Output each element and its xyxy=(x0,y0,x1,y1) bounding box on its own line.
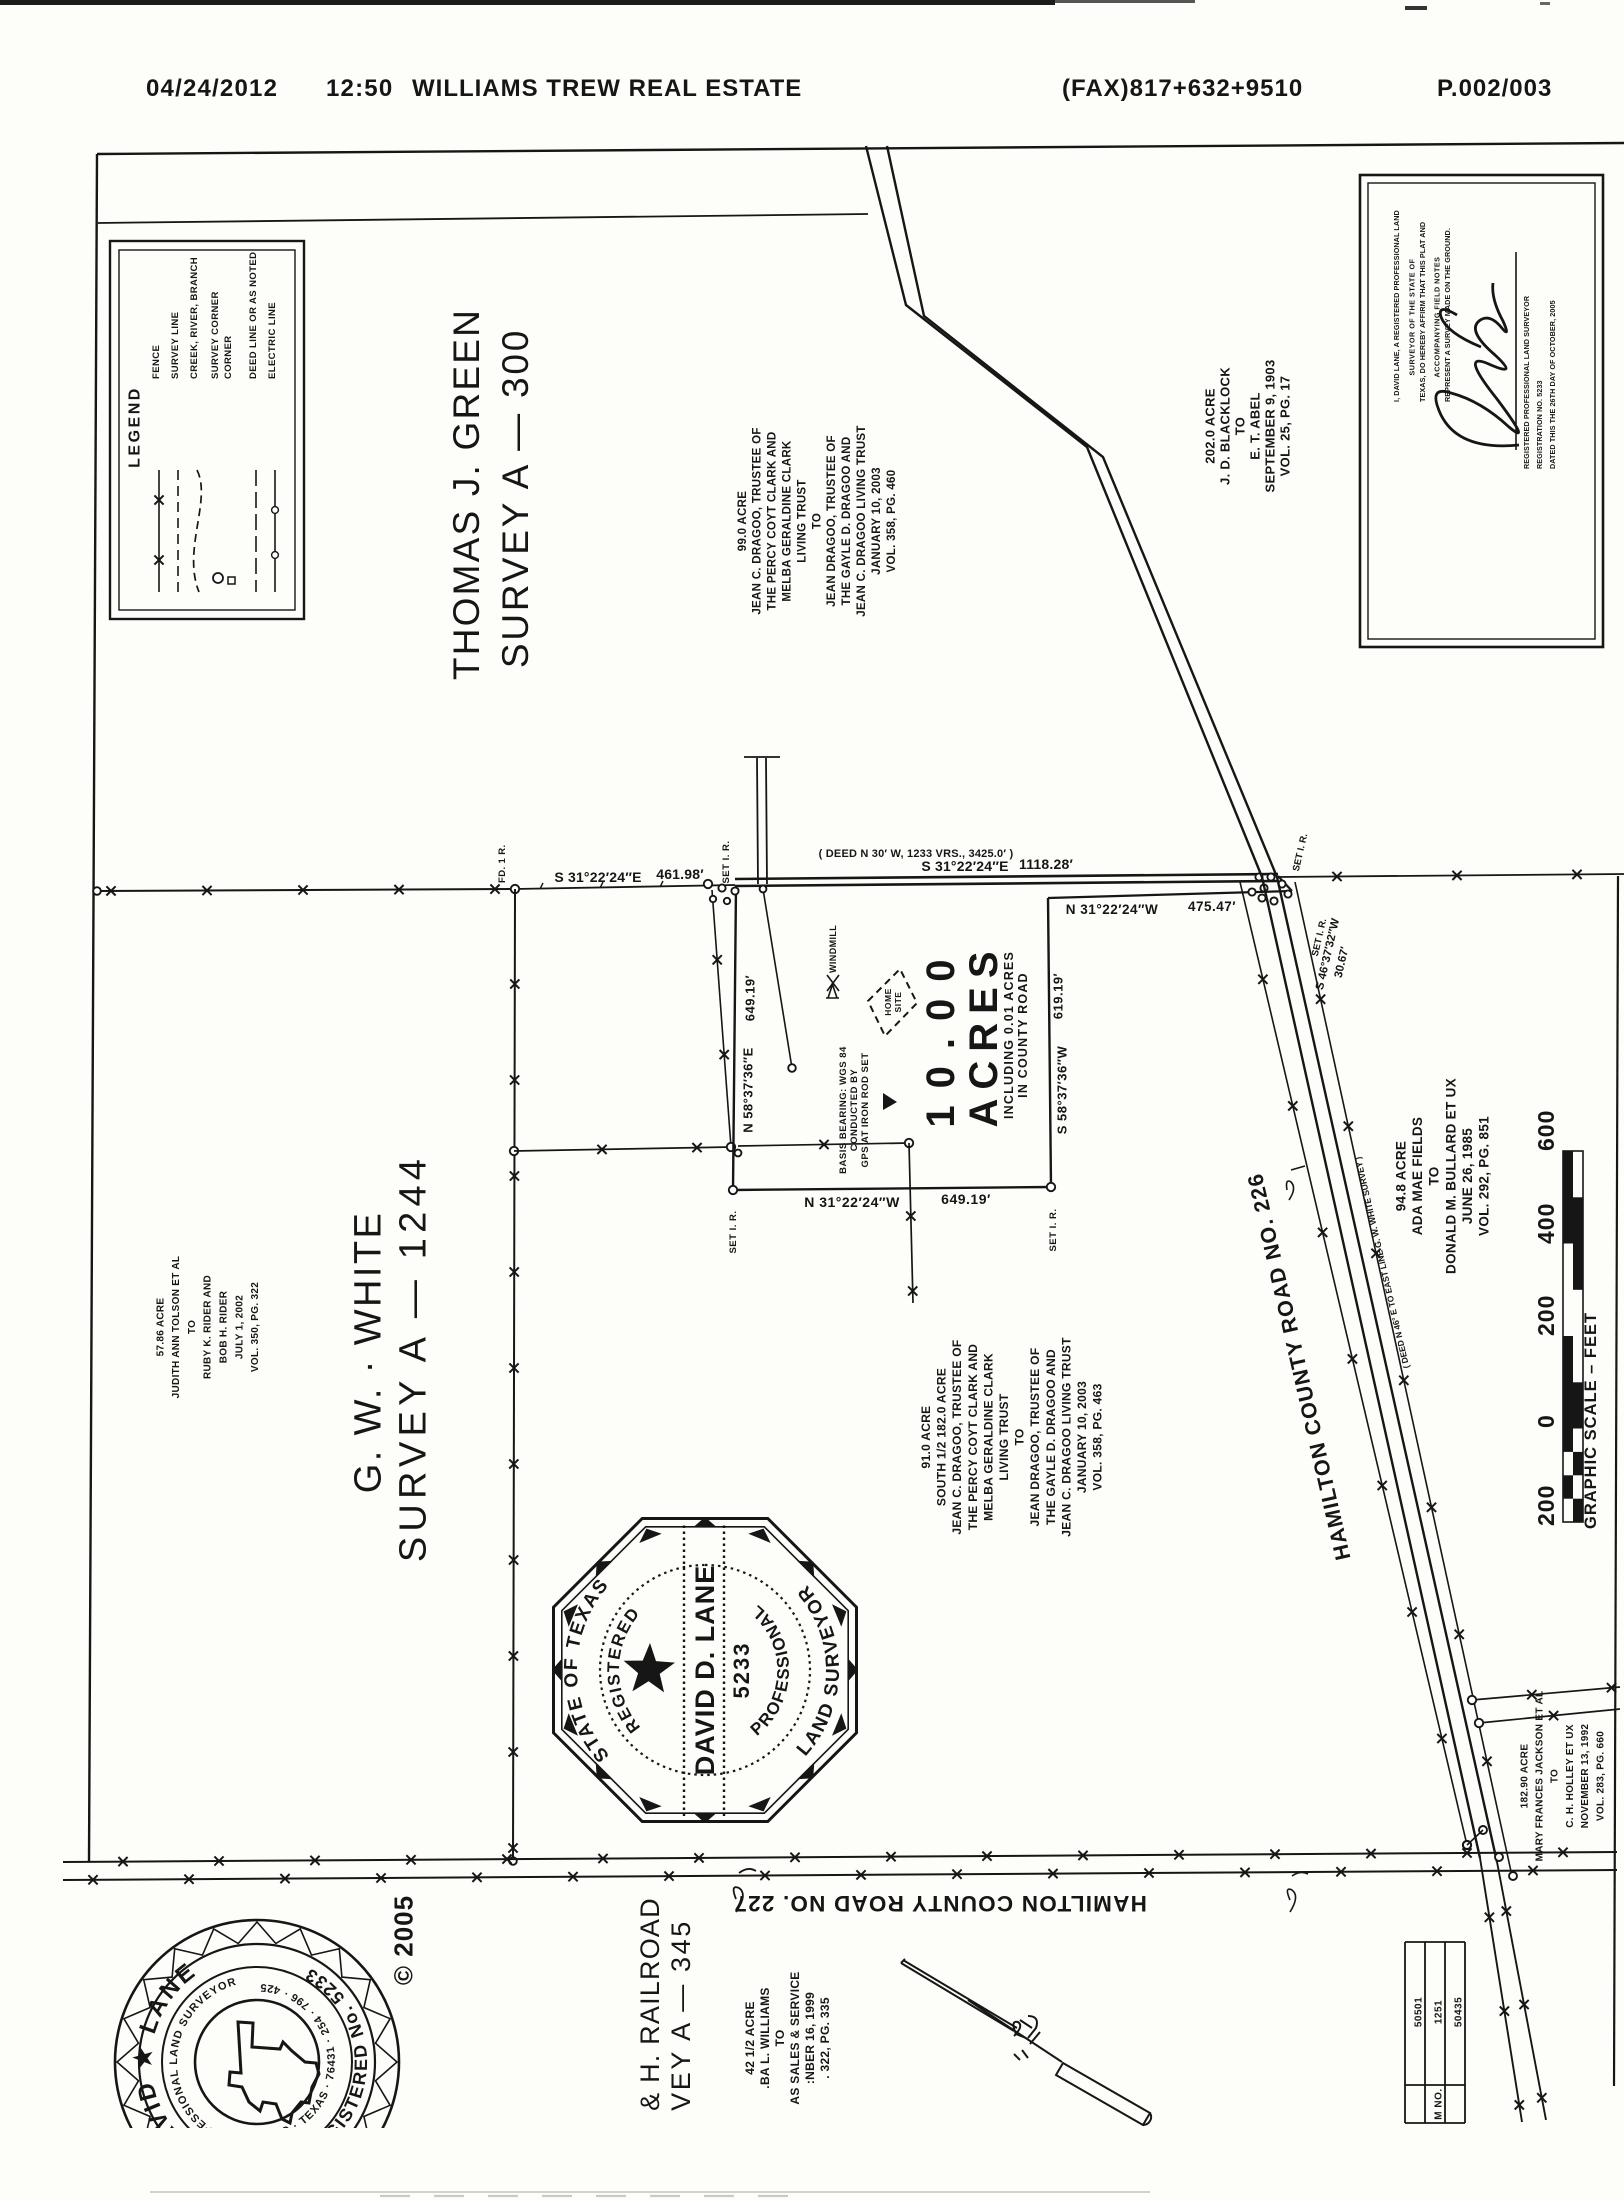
svg-text:SURVEY CORNER: SURVEY CORNER xyxy=(210,291,221,379)
svg-text:N 31°22′24″W: N 31°22′24″W xyxy=(1066,902,1158,917)
svg-text:S 58°37′36″W: S 58°37′36″W xyxy=(1054,1046,1069,1135)
svg-text:SITE: SITE xyxy=(893,992,903,1013)
svg-text:VOL. 350, PG. 322: VOL. 350, PG. 322 xyxy=(250,1282,261,1372)
svg-text:REPRESENT A SURVEY MADE ON THE: REPRESENT A SURVEY MADE ON THE GROUND. xyxy=(1443,228,1452,402)
svg-text:475.47′: 475.47′ xyxy=(1188,899,1236,914)
svg-text:HOME: HOME xyxy=(883,988,893,1016)
svg-text:99.0 ACRE: 99.0 ACRE xyxy=(737,491,749,551)
svg-text:THE PERCY COYT CLARK AND: THE PERCY COYT CLARK AND xyxy=(767,431,779,610)
svg-text:MELBA GERALDINE CLARK: MELBA GERALDINE CLARK xyxy=(981,1353,995,1521)
svg-text:N 31°22′24″W: N 31°22′24″W xyxy=(804,1194,900,1210)
svg-text:THE PERCY COYT CLARK AND: THE PERCY COYT CLARK AND xyxy=(966,1344,980,1531)
svg-text:BOB H. RIDER: BOB H. RIDER xyxy=(219,1290,230,1363)
svg-text:TO: TO xyxy=(187,1320,198,1334)
svg-text:50435: 50435 xyxy=(1453,1997,1464,2027)
svg-text:HAMILTON COUNTY ROAD NO. 227: HAMILTON COUNTY ROAD NO. 227 xyxy=(733,1891,1147,1916)
svg-text:619.19′: 619.19′ xyxy=(1050,973,1065,1019)
svg-text:VOL. 283, PG. 660: VOL. 283, PG. 660 xyxy=(1595,1731,1606,1821)
svg-text:1251: 1251 xyxy=(1433,2000,1444,2024)
svg-text:LIVING TRUST: LIVING TRUST xyxy=(796,479,808,562)
svg-text:& H. RAILROAD: & H. RAILROAD xyxy=(635,1897,665,2111)
svg-text:649.19′: 649.19′ xyxy=(742,975,757,1021)
svg-text:REGISTERED PROFESSIONAL LAND S: REGISTERED PROFESSIONAL LAND SURVEYOR xyxy=(1522,295,1531,469)
svg-text:THOMAS J. GREEN: THOMAS J. GREEN xyxy=(446,308,487,680)
svg-text:04/24/2012: 04/24/2012 xyxy=(146,75,278,102)
svg-text:182.90 ACRE: 182.90 ACRE xyxy=(1519,1744,1530,1809)
svg-text:SET I. R.: SET I. R. xyxy=(1291,832,1310,872)
svg-text:VEY A — 345: VEY A — 345 xyxy=(666,1919,696,2111)
svg-text:VOL. 292, PG. 851: VOL. 292, PG. 851 xyxy=(1477,1116,1492,1236)
svg-text:G. W. · WHITE: G. W. · WHITE xyxy=(348,1211,390,1493)
svg-text:FD. 1 R.: FD. 1 R. xyxy=(497,844,508,883)
svg-text:BASIS BEARING: WGS 84: BASIS BEARING: WGS 84 xyxy=(838,1046,849,1174)
svg-text:SET I. R.: SET I. R. xyxy=(721,840,732,883)
svg-text::NBER 16, 1999: :NBER 16, 1999 xyxy=(803,1992,817,2084)
svg-text:VOL. 25, PG. 17: VOL. 25, PG. 17 xyxy=(1277,376,1292,477)
svg-text:91.0 ACRE: 91.0 ACRE xyxy=(919,1406,933,1469)
svg-text:J. D. BLACKLOCK: J. D. BLACKLOCK xyxy=(1217,367,1232,485)
svg-text:.BA L. WILLIAMS: .BA L. WILLIAMS xyxy=(758,1987,772,2088)
svg-text:CORNER: CORNER xyxy=(223,335,234,379)
svg-text:CREEK, RIVER, BRANCH: CREEK, RIVER, BRANCH xyxy=(189,257,200,379)
svg-text:JUDITH ANN TOLSON ET AL: JUDITH ANN TOLSON ET AL xyxy=(171,1256,182,1399)
svg-text:S 31°22′24″E: S 31°22′24″E xyxy=(554,869,641,885)
svg-text:N 58°37′36″E: N 58°37′36″E xyxy=(740,1047,755,1133)
svg-text:JEAN DRAGOO, TRUSTEE OF: JEAN DRAGOO, TRUSTEE OF xyxy=(1028,1348,1042,1527)
svg-text:THE GAYLE D. DRAGOO AND: THE GAYLE D. DRAGOO AND xyxy=(841,437,853,606)
svg-text:FENCE: FENCE xyxy=(151,345,162,379)
svg-text:IN COUNTY ROAD: IN COUNTY ROAD xyxy=(1016,972,1030,1098)
svg-text:JEAN C. DRAGOO LIVING TRUST: JEAN C. DRAGOO LIVING TRUST xyxy=(856,425,868,616)
svg-text:200: 200 xyxy=(1533,1295,1559,1336)
svg-text:DATED THIS THE 26TH DAY OF OCT: DATED THIS THE 26TH DAY OF OCTOBER, 2005 xyxy=(1548,300,1557,469)
svg-text:NOVEMBER 13, 1992: NOVEMBER 13, 1992 xyxy=(1580,1724,1591,1829)
svg-text:TO: TO xyxy=(1550,1769,1561,1783)
svg-text:LEGEND: LEGEND xyxy=(126,386,143,468)
svg-text:C. H. HOLLEY ET UX: C. H. HOLLEY ET UX xyxy=(1565,1724,1576,1828)
svg-text:RUBY K. RIDER AND: RUBY K. RIDER AND xyxy=(203,1275,214,1379)
svg-text:VOL. 358, PG. 463: VOL. 358, PG. 463 xyxy=(1091,1383,1105,1490)
svg-text:(FAX)817+632+9510: (FAX)817+632+9510 xyxy=(1062,75,1303,102)
svg-text:SEPTEMBER 9, 1903: SEPTEMBER 9, 1903 xyxy=(1262,360,1277,493)
svg-text:0: 0 xyxy=(1533,1414,1559,1428)
svg-text:ELECTRIC LINE: ELECTRIC LINE xyxy=(267,302,278,379)
svg-text:10.00: 10.00 xyxy=(919,942,963,1127)
svg-text:E. T. ABEL: E. T. ABEL xyxy=(1247,392,1262,460)
svg-text:12:50: 12:50 xyxy=(326,75,393,102)
svg-text:S 31°22′24″E: S 31°22′24″E xyxy=(921,858,1008,874)
svg-text:200: 200 xyxy=(1533,1485,1559,1526)
svg-text:I, DAVID LANE, A REGISTERED PR: I, DAVID LANE, A REGISTERED PROFESSIONAL… xyxy=(1392,210,1401,402)
svg-text:VOL. 358, PG. 460: VOL. 358, PG. 460 xyxy=(886,470,898,573)
svg-text:GPS AT IRON ROD SET: GPS AT IRON ROD SET xyxy=(860,1052,871,1167)
svg-text:400: 400 xyxy=(1533,1203,1559,1244)
svg-text:TEXAS, DO HEREBY AFFIRM THAT T: TEXAS, DO HEREBY AFFIRM THAT THIS PLAT A… xyxy=(1418,222,1427,402)
svg-text:5233: 5233 xyxy=(729,1642,754,1699)
svg-text:PROFESSIONAL LAND SURVEYOR: PROFESSIONAL LAND SURVEYOR xyxy=(168,1976,238,2148)
svg-text:SOUTH 1/2 182.0 ACRE: SOUTH 1/2 182.0 ACRE xyxy=(935,1368,949,1506)
svg-text:DEED LINE OR AS NOTED: DEED LINE OR AS NOTED xyxy=(248,252,259,379)
svg-text:CONDUCTED BY: CONDUCTED BY xyxy=(849,1069,860,1152)
svg-text:SURVEY LINE: SURVEY LINE xyxy=(170,312,181,379)
svg-text:SURVEY A — 1244: SURVEY A — 1244 xyxy=(393,1154,435,1562)
svg-text:JEAN DRAGOO, TRUSTEE OF: JEAN DRAGOO, TRUSTEE OF xyxy=(826,435,838,607)
svg-text:JEAN C. DRAGOO, TRUSTEE OF: JEAN C. DRAGOO, TRUSTEE OF xyxy=(752,427,764,614)
svg-text:600: 600 xyxy=(1533,1110,1559,1151)
svg-text:TO: TO xyxy=(811,513,823,529)
svg-text:REGISTRATION NO. 5233: REGISTRATION NO. 5233 xyxy=(1535,380,1544,469)
svg-text:1118.28′: 1118.28′ xyxy=(1019,856,1073,872)
svg-text:JULY 1, 2002: JULY 1, 2002 xyxy=(234,1295,245,1359)
svg-text:LIVING TRUST: LIVING TRUST xyxy=(997,1393,1011,1480)
svg-text:JUNE 26, 1985: JUNE 26, 1985 xyxy=(1460,1128,1475,1224)
svg-text:TO: TO xyxy=(1013,1428,1027,1445)
svg-text:202.0 ACRE: 202.0 ACRE xyxy=(1202,388,1217,464)
svg-text:JANUARY 10, 2003: JANUARY 10, 2003 xyxy=(871,467,883,575)
svg-text:JEAN C. DRAGOO LIVING TRUST: JEAN C. DRAGOO LIVING TRUST xyxy=(1059,1337,1073,1537)
svg-text:SET I. R.: SET I. R. xyxy=(728,1210,739,1253)
svg-text:57.86 ACRE: 57.86 ACRE xyxy=(155,1298,166,1357)
svg-text:GRAPHIC SCALE – FEET: GRAPHIC SCALE – FEET xyxy=(1582,1312,1600,1529)
svg-text:© 2005: © 2005 xyxy=(389,1895,419,1985)
svg-text:JANUARY 10, 2003: JANUARY 10, 2003 xyxy=(1075,1381,1089,1493)
svg-text:WILLIAMS TREW REAL ESTATE: WILLIAMS TREW REAL ESTATE xyxy=(412,75,802,102)
svg-text:AS SALES & SERVICE: AS SALES & SERVICE xyxy=(788,1971,802,2104)
svg-text:ADA MAE FIELDS: ADA MAE FIELDS xyxy=(1410,1117,1425,1235)
svg-text:ACRES: ACRES xyxy=(962,942,1006,1127)
svg-text:30.67′: 30.67′ xyxy=(1333,945,1352,979)
svg-text:94.8 ACRE: 94.8 ACRE xyxy=(1394,1141,1409,1211)
svg-text:DONALD M. BULLARD ET UX: DONALD M. BULLARD ET UX xyxy=(1443,1078,1458,1274)
svg-text:TO: TO xyxy=(773,2029,787,2046)
svg-text:TO: TO xyxy=(1427,1166,1442,1185)
svg-text:JEAN C. DRAGOO, TRUSTEE OF: JEAN C. DRAGOO, TRUSTEE OF xyxy=(950,1339,964,1534)
svg-text:P.002/003: P.002/003 xyxy=(1437,75,1552,102)
svg-text:MELBA GERALDINE CLARK: MELBA GERALDINE CLARK xyxy=(782,440,794,602)
svg-text:TO: TO xyxy=(1232,417,1247,435)
svg-text:HAMILTON COUNTY ROAD NO. 226: HAMILTON COUNTY ROAD NO. 226 xyxy=(1243,1171,1356,1563)
svg-text:INCLUDING 0.01 ACRES: INCLUDING 0.01 ACRES xyxy=(1002,951,1016,1119)
svg-text:M NO.: M NO. xyxy=(1433,2088,1444,2119)
svg-text:THE GAYLE D. DRAGOO AND: THE GAYLE D. DRAGOO AND xyxy=(1044,1349,1058,1525)
svg-text:42 1/2 ACRE: 42 1/2 ACRE xyxy=(743,2001,757,2075)
svg-text:. 322, PG. 335: . 322, PG. 335 xyxy=(818,1997,832,2079)
svg-text:SURVEYOR OF THE STATE OF: SURVEYOR OF THE STATE OF xyxy=(1407,258,1416,375)
svg-text:50501: 50501 xyxy=(1413,1997,1424,2027)
svg-text:WINDMILL: WINDMILL xyxy=(828,925,838,973)
svg-text:DAVID D. LANE: DAVID D. LANE xyxy=(690,1565,720,1776)
svg-text:649.19′: 649.19′ xyxy=(941,1191,991,1207)
svg-text:461.98′: 461.98′ xyxy=(656,866,704,882)
svg-text:SURVEY A — 300: SURVEY A — 300 xyxy=(495,328,536,668)
svg-text:SET I. R.: SET I. R. xyxy=(1048,1208,1059,1251)
